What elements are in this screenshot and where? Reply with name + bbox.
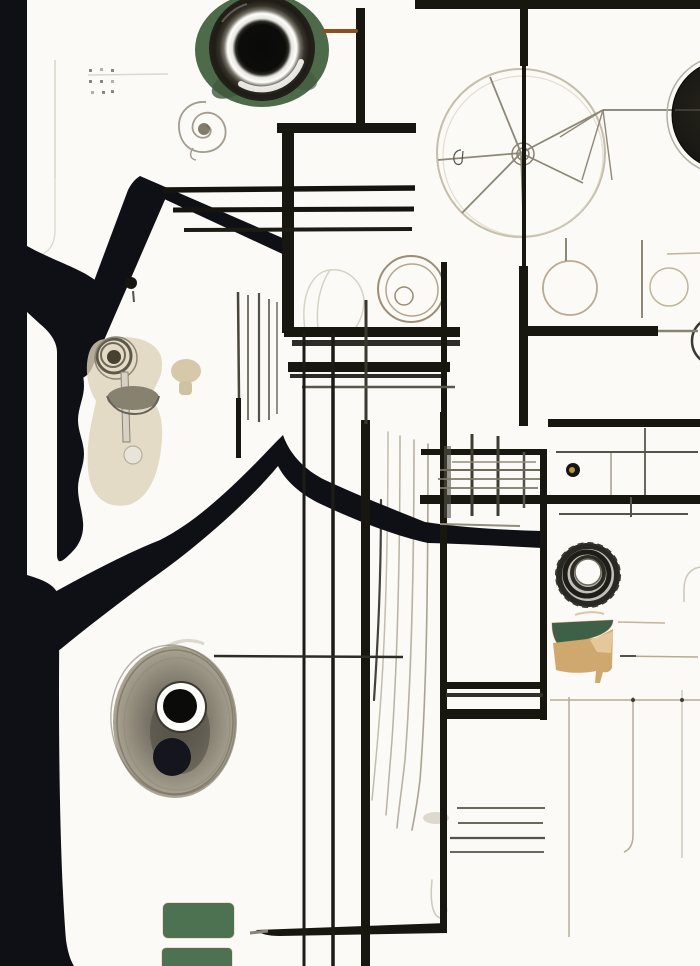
h-bar-4 <box>288 362 450 372</box>
mushroom-cap <box>171 359 201 383</box>
trunk-strip <box>0 0 27 966</box>
h-bar-6 <box>548 419 700 427</box>
fork-rule-1 <box>163 188 415 190</box>
green-tiles <box>162 903 234 966</box>
v-bar-4-top <box>441 262 447 414</box>
coil <box>556 543 620 607</box>
blob-rule <box>214 656 403 657</box>
rung-1 <box>444 682 543 689</box>
v-bar-5 <box>361 420 370 966</box>
faint-rule <box>88 74 168 75</box>
abstract-schematic <box>0 0 700 966</box>
v-bar-2-top <box>520 8 528 66</box>
artwork-canvas <box>0 0 700 966</box>
rung-2 <box>446 693 543 697</box>
h-bar-3 <box>284 327 460 337</box>
gold-eyelet <box>566 463 580 477</box>
ball <box>124 446 142 464</box>
top-bar <box>415 0 700 9</box>
coil-hole <box>575 559 601 585</box>
green-tile-1 <box>163 903 234 938</box>
v-bar-9 <box>540 449 547 720</box>
v-bar-2-bottom <box>519 266 528 426</box>
mushroom-stem <box>179 381 192 395</box>
brown-tick <box>322 29 358 33</box>
fork-rule-2 <box>173 209 414 210</box>
h-bar-2 <box>277 123 416 133</box>
bottom-bar-taper <box>250 931 268 933</box>
v-bar-3 <box>282 133 294 333</box>
h-bar-7 <box>420 495 700 504</box>
fork-rule-3 <box>184 229 412 230</box>
rung-3 <box>444 709 546 719</box>
v-bar-1 <box>356 8 365 129</box>
blob-dark-circle <box>153 738 191 776</box>
green-tile-2 <box>162 948 232 966</box>
h-bar-5 <box>526 326 658 336</box>
eye-pupil <box>163 689 197 723</box>
